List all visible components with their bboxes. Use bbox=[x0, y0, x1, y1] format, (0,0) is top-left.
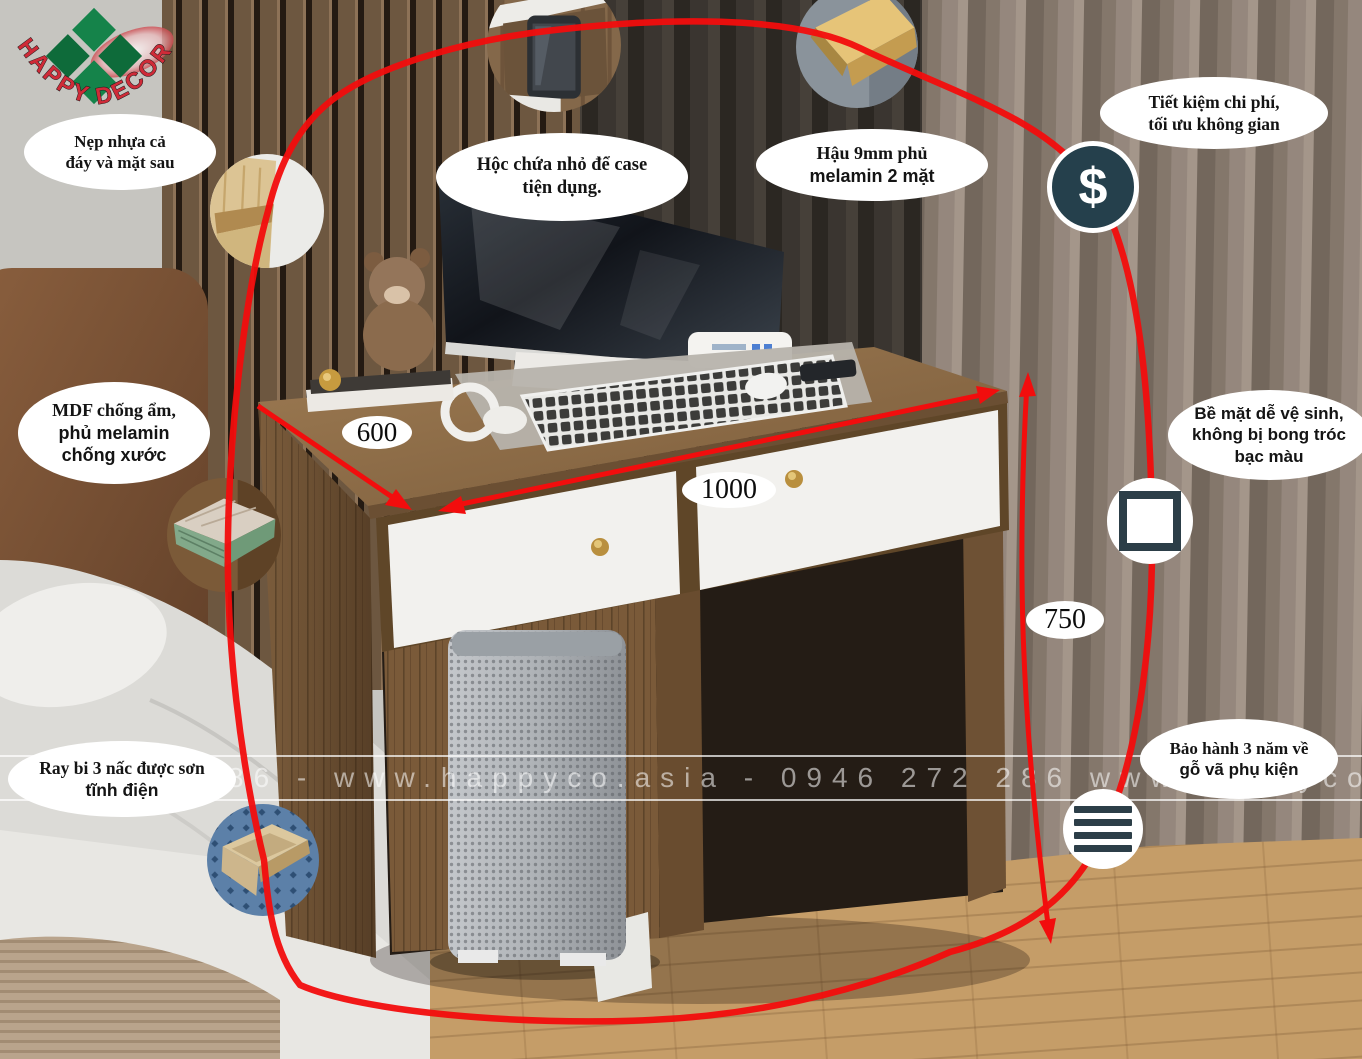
square-icon bbox=[1107, 478, 1193, 564]
lines-icon bbox=[1063, 789, 1143, 869]
callout-warranty: Bảo hành 3 năm về gỗ vã phụ kiện bbox=[1140, 719, 1338, 799]
callout-drawer-rails: Ray bi 3 nấc được sơn tĩnh điện bbox=[8, 741, 236, 817]
callout-mdf-material: MDF chống ẩm, phủ melamin chống xước bbox=[18, 382, 210, 484]
dimension-depth: 600 bbox=[342, 416, 412, 449]
mdf-core-detail-inset bbox=[167, 478, 281, 592]
dimension-width: 1000 bbox=[682, 472, 776, 508]
dimension-height: 750 bbox=[1026, 601, 1104, 639]
dollar-icon: $ bbox=[1047, 141, 1139, 233]
dollar-glyph: $ bbox=[1079, 157, 1108, 217]
callout-cost-saving: Tiết kiệm chi phí, tối ưu không gian bbox=[1100, 77, 1328, 149]
callout-back-panel: Hậu 9mm phủ melamin 2 mặt bbox=[756, 129, 988, 201]
plastic-edge-detail-inset bbox=[210, 154, 324, 268]
drawer-rail-detail-inset bbox=[207, 804, 319, 916]
happy-decor-logo: HAPPY DECOR bbox=[6, 2, 196, 130]
callout-surface-easy-clean: Bề mặt dễ vệ sinh, không bị bong tróc bạ… bbox=[1168, 390, 1362, 480]
callout-case-compartment: Hộc chứa nhỏ để case tiện dụng. bbox=[436, 133, 688, 221]
square-glyph bbox=[1119, 491, 1181, 551]
pc-case bbox=[430, 630, 660, 1002]
